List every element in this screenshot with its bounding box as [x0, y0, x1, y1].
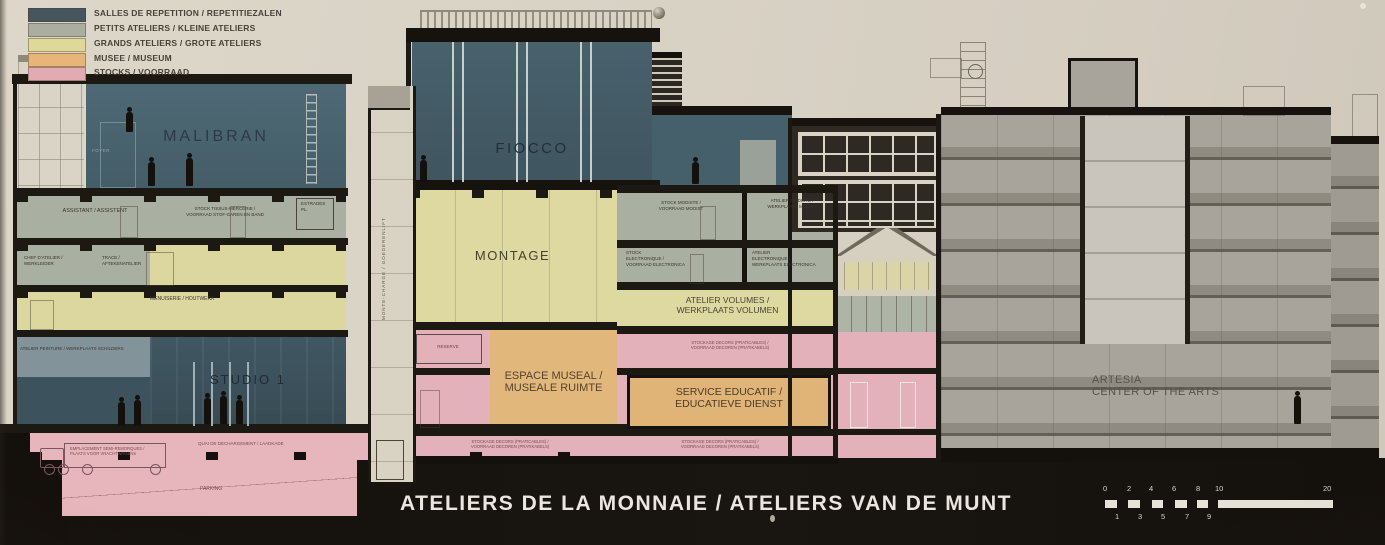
- scale-segment: [1152, 500, 1163, 508]
- section-wall: [833, 185, 838, 458]
- floor-slab: [652, 106, 792, 115]
- person-figure: [236, 400, 243, 424]
- scale-segment: [1197, 500, 1208, 508]
- scale-tick-6: 6: [1172, 484, 1176, 493]
- floor-grands-ateliers: [150, 245, 346, 285]
- person-figure: [134, 400, 141, 426]
- artesia-atrium-volume: [1080, 116, 1190, 344]
- room-label-assistant: ASSISTANT / ASSISTENT: [40, 208, 150, 214]
- person-figure: [118, 402, 125, 426]
- shaft-cap: [368, 86, 410, 110]
- scale-tick-8: 8: [1196, 484, 1200, 493]
- floor-slab: [408, 322, 617, 330]
- floor-slab: [617, 240, 838, 248]
- scale-segment: [1105, 500, 1117, 508]
- door-outline: [146, 252, 174, 286]
- room-label-atelier-peinture: ATELIER PEINTURE / WERKPLAATS SCHILDERS: [20, 346, 150, 351]
- floor-slab: [617, 368, 838, 375]
- door-outline: [850, 382, 868, 428]
- scale-tick-10: 10: [1215, 484, 1223, 493]
- scale-bar: 0 2 4 6 8 10 20 1 3 5 7 9: [1095, 484, 1350, 530]
- legend-label-musee: MUSEE / MUSEUM: [94, 53, 172, 63]
- annex-window-row: [836, 296, 940, 332]
- legend-swatch-stocks: [28, 67, 86, 81]
- truck-wheel: [44, 464, 55, 475]
- door-outline: [900, 382, 916, 428]
- door-outline: [30, 300, 54, 330]
- column-stubs: [16, 245, 346, 251]
- room-label-stockage-decors: STOCKAGE DECORS (PRATICABLES) / VOORRAAD…: [650, 340, 810, 351]
- legend-swatch-repetition: [28, 8, 86, 22]
- legend-label-stocks: STOCKS / VOORRAAD: [94, 67, 189, 77]
- scale-segment: [1175, 500, 1187, 508]
- legend-swatch-petits-ateliers: [28, 23, 86, 37]
- room-label-stockage-decors: STOCKAGE DECORS (PRATICABLES) / VOORRAAD…: [430, 439, 590, 450]
- floor-slab: [617, 429, 838, 436]
- ground-slab: [941, 448, 1379, 462]
- floor-slab: [14, 238, 348, 245]
- legend-swatch-grands-ateliers: [28, 38, 86, 52]
- truck-wheel: [150, 464, 161, 475]
- drawing-title: ATELIERS DE LA MONNAIE / ATELIERS VAN DE…: [400, 492, 960, 516]
- rooftop-vent: [652, 52, 682, 114]
- shaft-pit-outline: [376, 440, 404, 480]
- rooftop-penthouse: [1068, 58, 1138, 110]
- legend-label-repetition: SALLES DE REPETITION / REPETITIEZALEN: [94, 8, 282, 18]
- scale-tick-1: 1: [1115, 512, 1119, 521]
- rooftop-circle-outline: [968, 64, 983, 79]
- scale-segment: [1128, 500, 1140, 508]
- hall-label-studio1: STUDIO 1: [150, 372, 346, 387]
- person-figure: [1294, 396, 1301, 424]
- window-band: [798, 132, 936, 176]
- window-mullion: [452, 42, 464, 182]
- hall-label-artesia: ARTESIA CENTER OF THE ARTS: [1092, 374, 1262, 398]
- window-mullion: [516, 42, 528, 182]
- floor-slab: [14, 285, 348, 292]
- fiocco-hall: [412, 42, 652, 184]
- truck-wheel: [82, 464, 93, 475]
- person-figure: [204, 398, 211, 424]
- room-label-atelier-volumes: ATELIER VOLUMES / WERKPLAATS VOLUMEN: [617, 295, 838, 315]
- person-figure: [220, 396, 227, 424]
- floor-slab: [617, 282, 838, 290]
- annex-gable: [839, 227, 935, 257]
- rooftop-box-outline: [1352, 94, 1378, 140]
- floor-slab: [836, 429, 940, 435]
- room-label-atelier-modiste: ATELIER MODISTE / WERKPLAATS MODIST: [752, 198, 832, 210]
- room-label-reserve: RESERVE: [416, 344, 480, 349]
- scale-tick-7: 7: [1185, 512, 1189, 521]
- door-outline: [690, 254, 704, 284]
- scale-tick-4: 4: [1149, 484, 1153, 493]
- room-label-parking: PARKING: [200, 486, 222, 492]
- floor-slab: [617, 185, 838, 193]
- person-figure: [420, 160, 427, 182]
- legend-swatch-musee: [28, 53, 86, 67]
- floor-slab: [14, 188, 348, 196]
- room-label-chef-atelier: CHEF D'ATELIER / WERKLEIDER: [24, 255, 63, 267]
- room-label-menuiserie: MENUISERIE / HOUTWERK: [150, 296, 290, 302]
- room-label-foyer: FOYER: [92, 148, 110, 153]
- room-label-stock-modiste: STOCK MODISTE / VOORRAAD MODIST: [636, 200, 726, 212]
- hall-label-fiocco: FIOCCO: [412, 140, 652, 157]
- legend: SALLES DE REPETITION / REPETITIEZALEN PE…: [28, 4, 258, 78]
- floor-slab: [408, 368, 490, 375]
- photo-speck: [770, 515, 775, 522]
- scale-tick-3: 3: [1138, 512, 1142, 521]
- person-figure: [126, 112, 133, 132]
- truck-wheel: [58, 464, 69, 475]
- legend-label-grands-ateliers: GRANDS ATELIERS / GROTE ATELIERS: [94, 38, 261, 48]
- room-label-estrades: ESTRADES PL.: [301, 201, 325, 213]
- room-label-trace: TRACE / AFTEKENATELIER: [102, 255, 141, 267]
- person-figure: [692, 162, 699, 184]
- room-label-stock-electronique: STOCK ELECTRONIQUE / VOORRAAD ELECTRONIC…: [626, 250, 685, 268]
- freight-elevator-shaft: [368, 86, 416, 482]
- studio-lobby: [16, 377, 150, 427]
- fiocco-roof-slab: [406, 28, 660, 42]
- room-label-espace-museal: ESPACE MUSEAL / MUSEALE RUIMTE: [490, 370, 617, 394]
- scale-segment-long: [1218, 500, 1333, 508]
- floor-atelier-peinture: [16, 337, 150, 377]
- artesia-roof-slab: [941, 107, 1331, 115]
- room-label-stock-tissus: STOCK TISSUS-MERCERIE / VOORRAAD STOF-GA…: [160, 206, 290, 218]
- artesia-right-wing: [1331, 143, 1379, 454]
- section-wall: [936, 114, 941, 460]
- section-drawing-photo: ATELIERS DE LA MONNAIE / ATELIERS VAN DE…: [0, 0, 1385, 545]
- column-stubs: [408, 190, 617, 198]
- floor-slab: [836, 368, 940, 374]
- room-label-service-educatif: SERVICE EDUCATIF / EDUCATIEVE DIENST: [627, 386, 831, 410]
- scale-tick-2: 2: [1127, 484, 1131, 493]
- room-label-quai: QUAI DE DECHARGEMENT / LAADKADE: [198, 441, 284, 446]
- scale-tick-5: 5: [1161, 512, 1165, 521]
- partition-wall: [742, 248, 747, 282]
- room-label-atelier-electronique: ATELIER ELECTRONIQUE / WERKPLAATS ELECTR…: [752, 250, 816, 268]
- legend-label-petits-ateliers: PETITS ATELIERS / KLEINE ATELIERS: [94, 23, 256, 33]
- hall-label-malibran: MALIBRAN: [86, 128, 346, 146]
- photo-speck: [1360, 3, 1366, 9]
- section-wall: [13, 78, 17, 428]
- room-label-monte-charge: MONTE-CHARGE / GOEDERENLIFT: [381, 200, 386, 320]
- scale-tick-0: 0: [1103, 484, 1107, 493]
- room-label-emplacement: EMPLACEMENT SEMI-REMORQUES / PLAATS VOOR…: [70, 446, 144, 457]
- room-label-stockage-decors: STOCKAGE DECORS (PRATICABLES) / VOORRAAD…: [640, 439, 800, 450]
- person-figure: [186, 158, 193, 186]
- reserve-room-outline: [416, 334, 482, 364]
- side-panel: [740, 140, 776, 185]
- scale-tick-20: 20: [1323, 484, 1331, 493]
- floor-slab: [408, 429, 617, 436]
- window-mullion: [580, 42, 592, 182]
- push-pin-artifact: [653, 7, 665, 19]
- rooftop-box-outline: [930, 58, 962, 78]
- hall-label-montage: MONTAGE: [408, 248, 617, 263]
- annex-clerestory: [844, 262, 932, 290]
- scale-tick-9: 9: [1207, 512, 1211, 521]
- artesia-roof-slab: [1331, 136, 1379, 144]
- floor-slab: [14, 330, 348, 337]
- person-figure: [148, 162, 155, 186]
- door-outline: [420, 390, 440, 428]
- floor-slab: [617, 326, 838, 334]
- partition-wall: [742, 193, 747, 240]
